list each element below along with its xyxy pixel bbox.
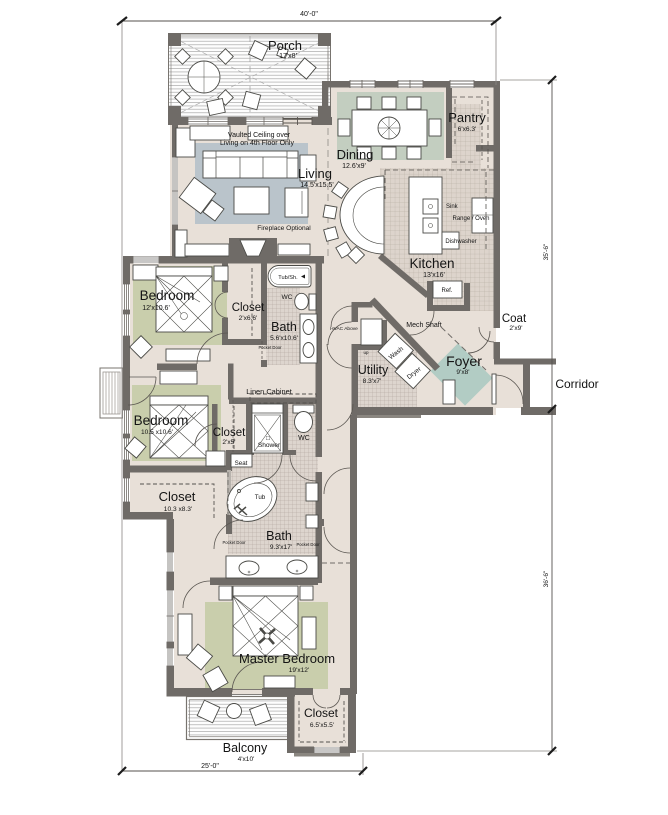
svg-text:Kitchen: Kitchen bbox=[409, 256, 454, 271]
svg-text:Dishwasher: Dishwasher bbox=[445, 239, 476, 245]
svg-text:10.5 x10.6': 10.5 x10.6' bbox=[141, 429, 173, 436]
svg-text:Closet: Closet bbox=[213, 427, 246, 439]
svg-text:Seat: Seat bbox=[235, 460, 248, 467]
svg-text:Bedroom: Bedroom bbox=[134, 413, 189, 428]
svg-text:Bath: Bath bbox=[266, 529, 292, 543]
svg-text:Pocket Door: Pocket Door bbox=[296, 542, 320, 547]
svg-text:HVAC Above: HVAC Above bbox=[330, 326, 358, 332]
svg-text:Living on 4th Floor Only: Living on 4th Floor Only bbox=[220, 140, 294, 147]
svg-text:WC: WC bbox=[282, 294, 293, 301]
svg-text:25'-0": 25'-0" bbox=[201, 763, 219, 770]
svg-text:12'x10.6': 12'x10.6' bbox=[142, 305, 170, 312]
svg-text:40'-0": 40'-0" bbox=[300, 11, 318, 18]
svg-text:Linen Cabinet: Linen Cabinet bbox=[246, 387, 292, 396]
svg-text:6.5'x5.5': 6.5'x5.5' bbox=[310, 722, 334, 729]
svg-text:Corridor: Corridor bbox=[555, 377, 598, 391]
svg-text:19'x12': 19'x12' bbox=[289, 667, 309, 674]
svg-text:17'x8': 17'x8' bbox=[279, 53, 297, 60]
svg-text:up: up bbox=[363, 350, 369, 355]
svg-text:35'-6": 35'-6" bbox=[543, 243, 550, 260]
svg-text:Porch: Porch bbox=[268, 38, 302, 53]
svg-text:Bedroom: Bedroom bbox=[140, 288, 195, 303]
svg-text:Ref.: Ref. bbox=[441, 288, 452, 294]
svg-text:2'x9': 2'x9' bbox=[509, 325, 522, 332]
svg-text:Mech Shaft: Mech Shaft bbox=[406, 322, 441, 329]
svg-text:Bath: Bath bbox=[271, 320, 297, 334]
svg-text:Pocket Door: Pocket Door bbox=[222, 540, 246, 545]
svg-text:Fireplace Optional: Fireplace Optional bbox=[257, 225, 311, 232]
svg-text:Pantry: Pantry bbox=[448, 110, 486, 125]
svg-text:Tub: Tub bbox=[255, 494, 266, 501]
svg-text:Balcony: Balcony bbox=[223, 741, 268, 755]
svg-text:Dining: Dining bbox=[337, 147, 374, 162]
svg-text:8.3'x7': 8.3'x7' bbox=[363, 378, 382, 385]
svg-text:Sink: Sink bbox=[446, 204, 459, 210]
svg-text:Living: Living bbox=[298, 166, 332, 181]
svg-text:Vaulted Ceiling over: Vaulted Ceiling over bbox=[228, 132, 291, 139]
svg-text:4'x10': 4'x10' bbox=[238, 756, 255, 763]
svg-text:Foyer: Foyer bbox=[446, 353, 482, 369]
svg-text:Shower: Shower bbox=[258, 442, 281, 449]
svg-text:2'x6.6': 2'x6.6' bbox=[239, 315, 258, 322]
svg-text:9.3'x17': 9.3'x17' bbox=[270, 544, 292, 551]
svg-text:2'x5': 2'x5' bbox=[222, 439, 235, 446]
svg-text:36'-6": 36'-6" bbox=[543, 570, 550, 587]
svg-text:Closet: Closet bbox=[232, 302, 265, 314]
svg-text:Tub/Sh.: Tub/Sh. bbox=[278, 275, 298, 281]
svg-text:WC: WC bbox=[298, 435, 310, 442]
svg-text:14.5'x15.5': 14.5'x15.5' bbox=[300, 182, 333, 189]
svg-text:6'x6.3': 6'x6.3' bbox=[458, 126, 477, 133]
svg-text:Range / Oven: Range / Oven bbox=[452, 216, 489, 222]
svg-text:9'x8': 9'x8' bbox=[456, 369, 469, 376]
svg-text:Utility: Utility bbox=[358, 363, 389, 377]
svg-text:Coat: Coat bbox=[502, 313, 527, 325]
svg-text:□: □ bbox=[266, 435, 270, 442]
svg-text:Master Bedroom: Master Bedroom bbox=[239, 651, 335, 666]
svg-text:Closet: Closet bbox=[159, 489, 196, 504]
svg-text:Pocket Door: Pocket Door bbox=[258, 345, 282, 350]
svg-text:Closet: Closet bbox=[304, 706, 339, 720]
svg-text:10.3 x8.3': 10.3 x8.3' bbox=[164, 506, 192, 513]
svg-text:5.6'x10.6': 5.6'x10.6' bbox=[270, 335, 298, 342]
svg-text:12.6'x9': 12.6'x9' bbox=[342, 163, 366, 170]
svg-text:13'x16': 13'x16' bbox=[423, 272, 445, 279]
